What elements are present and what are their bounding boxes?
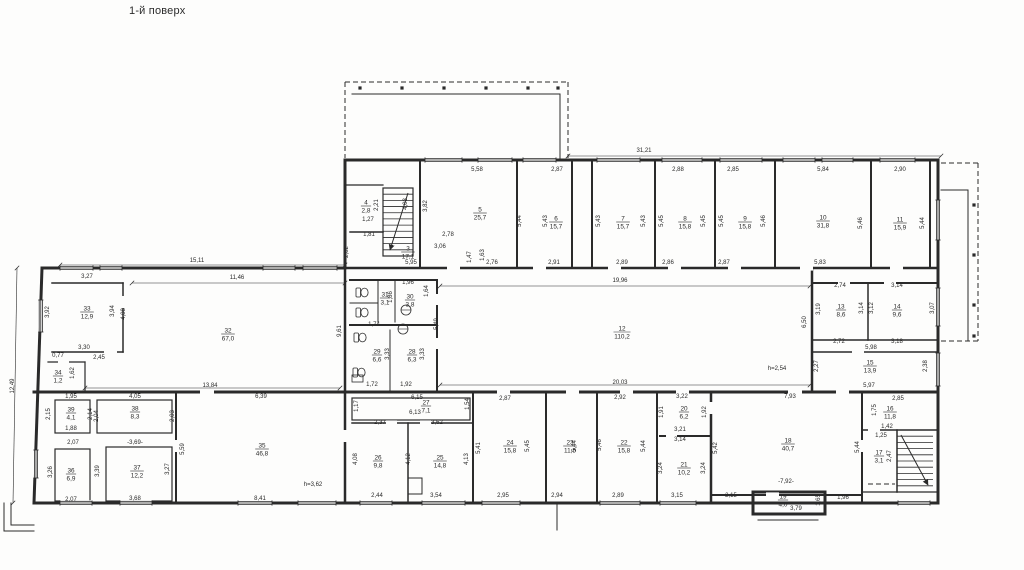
svg-text:13,9: 13,9 <box>864 367 877 374</box>
svg-text:7: 7 <box>621 216 625 223</box>
room-label-11: 1115,9 <box>893 217 907 232</box>
dimension-label: 5,44 <box>517 215 523 227</box>
dimension-label: 2,85 <box>727 167 739 173</box>
room-label-28: 286,3 <box>407 349 417 364</box>
svg-text:7,1: 7,1 <box>422 407 431 414</box>
room-label-10: 1031,8 <box>816 215 830 230</box>
room-label-30: 303,8 <box>405 294 415 309</box>
dimension-label: 5,45 <box>525 440 531 452</box>
svg-text:21: 21 <box>680 462 688 469</box>
openings-layer <box>33 157 940 505</box>
room-label-7: 715,7 <box>616 216 630 231</box>
dimension-label: 19,96 <box>612 278 628 284</box>
svg-text:28: 28 <box>408 349 416 356</box>
svg-text:15: 15 <box>866 360 874 367</box>
dimension-label: 5,43 <box>641 215 647 227</box>
svg-text:33: 33 <box>83 306 91 313</box>
dimension-label: 1,25 <box>875 433 887 439</box>
dimension-label: 1,62 <box>70 367 76 379</box>
dimension-label: h=2,54 <box>768 366 787 372</box>
svg-text:26: 26 <box>374 455 382 462</box>
room-label-24: 2415,8 <box>503 440 517 455</box>
dimension-label: 5,97 <box>863 383 875 389</box>
dimension-label: 1,42 <box>881 424 893 430</box>
svg-text:11: 11 <box>897 217 904 224</box>
dimension-label: 3,27 <box>81 274 93 280</box>
toilet-icon <box>354 333 366 342</box>
svg-text:34: 34 <box>54 370 62 377</box>
dimension-label: 3,33 <box>420 348 426 360</box>
room-label-4: 42,8 <box>361 200 371 215</box>
dimension-label: 5,83 <box>814 260 826 266</box>
dimension-label: 6,13 <box>409 410 421 416</box>
room-label-29: 296,6 <box>372 349 382 364</box>
dimension-label: 3,21 <box>674 427 686 433</box>
dimension-label: 1,91 <box>659 406 665 418</box>
dimension-label: 2,47 <box>887 450 893 462</box>
svg-text:22: 22 <box>620 440 628 447</box>
dimension-label: 3,22 <box>676 394 688 400</box>
svg-text:11,8: 11,8 <box>884 413 896 420</box>
svg-text:110,2: 110,2 <box>614 333 630 340</box>
svg-text:2,8: 2,8 <box>362 207 371 214</box>
dimension-label: 2,87 <box>499 396 511 402</box>
svg-text:15,8: 15,8 <box>739 223 752 230</box>
svg-text:17,1: 17,1 <box>402 253 415 260</box>
dimension-label: 2,74 <box>834 283 846 289</box>
svg-text:12: 12 <box>618 326 626 333</box>
dimension-label: 2,15 <box>46 408 52 420</box>
dimension-label: 2,88 <box>672 167 684 173</box>
room-label-33: 3312,9 <box>80 306 94 321</box>
dimension-label: 5,43 <box>596 215 602 227</box>
dimension-label: 2,72 <box>833 339 845 345</box>
svg-text:8,6: 8,6 <box>837 311 846 318</box>
room-label-13: 138,6 <box>836 304 846 319</box>
svg-text:16: 16 <box>886 406 894 413</box>
svg-text:6,2: 6,2 <box>680 413 689 420</box>
dimension-label: 5,44 <box>920 217 926 229</box>
dimension-label: 5,49 <box>434 318 440 330</box>
dimension-label: 3,24 <box>658 462 664 474</box>
dimension-label: 11,46 <box>230 275 245 281</box>
svg-text:8: 8 <box>683 216 687 223</box>
dimension-label: 5,44 <box>641 440 647 452</box>
svg-text:3: 3 <box>406 246 410 253</box>
room-label-18: 1840,7 <box>781 438 795 453</box>
dimension-label: 7,93 <box>784 394 796 400</box>
svg-text:3,8: 3,8 <box>406 301 415 308</box>
svg-text:27: 27 <box>422 400 430 407</box>
dimension-label: 4,05 <box>129 394 141 400</box>
dimension-label: 3,24 <box>701 462 707 474</box>
room-label-20: 206,2 <box>679 406 689 421</box>
room-label-34: 341,2 <box>53 370 63 385</box>
svg-text:38: 38 <box>131 406 139 413</box>
room-label-15: 1513,9 <box>863 360 877 375</box>
svg-text:6,6: 6,6 <box>373 356 382 363</box>
dimension-label: 2,02 <box>344 246 350 258</box>
dimension-label: 15,11 <box>190 258 205 264</box>
svg-text:9,6: 9,6 <box>893 311 902 318</box>
dimension-label: 3,62 <box>431 420 443 426</box>
room-label-38: 388,3 <box>130 406 140 421</box>
dimension-label: 1,92 <box>702 406 708 418</box>
dimension-label: 5,45 <box>701 215 707 227</box>
room-label-6: 615,7 <box>549 216 563 231</box>
dimension-label: 2,38 <box>923 360 929 372</box>
dimension-label: 3,92 <box>45 306 51 318</box>
dimension-label: 3,14 <box>859 302 865 314</box>
dimension-label: 5,45 <box>719 215 725 227</box>
dimension-label: 2,86 <box>662 260 674 266</box>
dimension-label: 3,26 <box>48 466 54 478</box>
svg-text:35: 35 <box>258 443 266 450</box>
dimension-label: 3,18 <box>891 339 903 345</box>
dimension-label: 1,72 <box>366 382 378 388</box>
dimension-label: 2,15 <box>725 493 737 499</box>
room-label-14: 149,6 <box>892 304 902 319</box>
dimension-label: 3,68 <box>129 496 141 502</box>
dimension-label: 31,21 <box>636 148 652 154</box>
svg-text:25: 25 <box>436 455 444 462</box>
svg-text:15,7: 15,7 <box>550 223 563 230</box>
dimension-label: 3,14 <box>674 437 686 443</box>
dimension-label: 20,03 <box>612 380 628 386</box>
dimension-label: 3,12 <box>869 302 875 314</box>
room-label-17: 173,1 <box>874 450 884 465</box>
room-label-36: 366,9 <box>66 468 76 483</box>
svg-text:4,0: 4,0 <box>779 501 788 508</box>
dimension-label: 6,50 <box>802 316 808 328</box>
dimension-label: h=3,62 <box>304 482 323 488</box>
dimension-label: 4,08 <box>121 308 127 320</box>
room-label-37: 3712,2 <box>130 465 144 480</box>
dimension-label: 2,87 <box>718 260 730 266</box>
svg-text:9: 9 <box>743 216 747 223</box>
svg-text:8,3: 8,3 <box>131 413 140 420</box>
room-label-21: 2110,2 <box>677 462 691 477</box>
svg-text:4,1: 4,1 <box>67 414 76 421</box>
rooms-layer: 317,142,8525,7615,7715,7815,8915,81031,8… <box>53 200 907 509</box>
dimension-label: 3,33 <box>385 348 391 360</box>
dimension-label: 3,27 <box>165 463 171 475</box>
room-label-39: 394,1 <box>66 407 76 422</box>
dimension-label: 2,89 <box>616 260 628 266</box>
dimension-label: 1,88 <box>65 426 77 432</box>
dimension-label: 5,95 <box>405 260 417 266</box>
dimension-label: 5,42 <box>713 442 719 454</box>
dimension-label: 3,06 <box>434 244 446 250</box>
dimension-label: 5,43 <box>543 215 549 227</box>
svg-text:37: 37 <box>133 465 141 472</box>
dimension-label: 3,30 <box>78 345 90 351</box>
svg-text:67,0: 67,0 <box>222 335 235 342</box>
dimension-label: 2,07 <box>65 497 77 503</box>
room-label-9: 915,8 <box>738 216 752 231</box>
svg-text:10: 10 <box>819 215 827 222</box>
svg-text:14,8: 14,8 <box>434 462 447 469</box>
dimension-label: 1,74 <box>368 322 380 328</box>
floor-plan: 1-й поверх 31,215,582,872,882,855,842,90… <box>0 0 1024 570</box>
dimension-label: 2,07 <box>67 440 79 446</box>
dimension-label: 1,96 <box>837 495 849 501</box>
svg-text:6,9: 6,9 <box>67 475 76 482</box>
dimension-label: 2,27 <box>814 360 820 372</box>
dimension-label: 5,46 <box>761 215 767 227</box>
room-label-12: 12110,2 <box>614 326 631 341</box>
svg-text:10,2: 10,2 <box>678 469 691 476</box>
svg-text:25,7: 25,7 <box>474 214 487 221</box>
dimension-label: 2,45 <box>93 355 105 361</box>
dimension-label: 2,91 <box>548 260 560 266</box>
svg-text:14: 14 <box>893 304 901 311</box>
svg-text:3,1: 3,1 <box>381 299 390 306</box>
toilet-icon <box>356 308 368 317</box>
dimension-label: 5,41 <box>476 442 482 454</box>
dimension-label: 3,39 <box>95 465 101 477</box>
svg-text:36: 36 <box>67 468 75 475</box>
svg-text:39: 39 <box>67 407 75 414</box>
dimension-label: 5,46 <box>597 439 603 451</box>
dims-layer: 31,215,582,872,882,855,842,903,824,032,2… <box>10 148 943 512</box>
dimension-label: 2,87 <box>551 167 563 173</box>
dimension-label: -3,69- <box>127 440 143 446</box>
dimension-label: 3,94 <box>110 305 116 317</box>
svg-text:15,8: 15,8 <box>504 447 517 454</box>
svg-text:9,8: 9,8 <box>374 462 383 469</box>
dimension-label: 3,82 <box>423 200 429 212</box>
dimension-label: 13,84 <box>202 383 218 389</box>
dimension-label: 1,75 <box>872 404 878 416</box>
dimension-label: 0,77 <box>52 353 64 359</box>
room-label-22: 2215,8 <box>617 440 631 455</box>
dimension-label: 1,96 <box>402 280 414 286</box>
svg-text:15,7: 15,7 <box>617 223 630 230</box>
dimension-label: 3,14 <box>891 283 903 289</box>
dimension-label: 4,08 <box>353 453 359 465</box>
svg-text:46,8: 46,8 <box>256 450 269 457</box>
dimension-label: 1,47 <box>467 251 473 263</box>
dimension-label: 2,03 <box>170 410 176 422</box>
dimension-label: 1,54 <box>465 398 471 410</box>
dimension-label: 2,89 <box>612 493 624 499</box>
svg-text:1,2: 1,2 <box>54 377 63 384</box>
room-label-25: 2514,8 <box>433 455 447 470</box>
dimension-label: 1,17 <box>354 400 360 412</box>
dimension-label: 5,46 <box>858 217 864 229</box>
dimension-label: 3,54 <box>430 493 442 499</box>
svg-text:13: 13 <box>837 304 845 311</box>
dimension-label: 3,19 <box>816 303 822 315</box>
svg-text:11,5: 11,5 <box>564 447 576 454</box>
dimension-label: 2,90 <box>894 167 906 173</box>
dimension-label: 12,49 <box>10 378 16 394</box>
svg-text:29: 29 <box>373 349 381 356</box>
room-label-16: 1611,8 <box>883 406 897 421</box>
floor-plan-svg: 31,215,582,872,882,855,842,903,824,032,2… <box>0 0 1024 570</box>
svg-text:24: 24 <box>506 440 514 447</box>
dimension-label: 1,92 <box>400 382 412 388</box>
room-label-26: 269,8 <box>373 455 383 470</box>
svg-text:15,8: 15,8 <box>618 447 631 454</box>
dimension-label: 3,15 <box>671 493 683 499</box>
dimension-label: 3,07 <box>930 302 936 314</box>
dimension-label: 2,94 <box>551 493 563 499</box>
svg-text:6,3: 6,3 <box>408 356 417 363</box>
svg-text:12,9: 12,9 <box>81 313 94 320</box>
dimension-label: 5,58 <box>471 167 483 173</box>
dimension-label: 5,45 <box>659 215 665 227</box>
dimension-label: 3,79 <box>790 506 802 512</box>
svg-text:32: 32 <box>224 328 232 335</box>
svg-text:17: 17 <box>875 450 883 457</box>
dimension-label: 5,84 <box>817 167 829 173</box>
svg-text:18: 18 <box>784 438 792 445</box>
svg-text:23: 23 <box>566 440 574 447</box>
svg-text:3,1: 3,1 <box>875 457 884 464</box>
dimension-label: 5,59 <box>180 443 186 455</box>
dimension-label: 4,03 <box>403 198 409 210</box>
dimension-label: 1,65 <box>816 494 822 506</box>
dimension-label: 2,21 <box>374 199 380 211</box>
svg-text:20: 20 <box>680 406 688 413</box>
dimension-label: 2,92 <box>614 395 626 401</box>
dimension-label: 2,37 <box>374 420 386 426</box>
dimension-label: 2,76 <box>486 260 498 266</box>
dimension-label: 2,04 <box>94 410 100 422</box>
room-label-5: 525,7 <box>473 207 487 222</box>
svg-text:15,8: 15,8 <box>679 223 692 230</box>
dimension-label: 5,98 <box>865 345 877 351</box>
dimension-label: 2,85 <box>892 396 904 402</box>
dimension-label: 2,44 <box>371 493 383 499</box>
svg-text:15,9: 15,9 <box>894 224 907 231</box>
toilet-icon <box>356 288 368 297</box>
dimension-label: 8,41 <box>254 496 266 502</box>
dimension-label: 2,78 <box>442 232 454 238</box>
svg-text:12,2: 12,2 <box>131 472 144 479</box>
room-label-8: 815,8 <box>678 216 692 231</box>
dimension-label: 1,64 <box>424 285 430 297</box>
room-label-32: 3267,0 <box>221 328 235 343</box>
room-label-35: 3546,8 <box>255 443 269 458</box>
dimension-label: 4,12 <box>406 453 412 465</box>
svg-text:31,8: 31,8 <box>817 222 830 229</box>
svg-text:4: 4 <box>364 200 368 207</box>
dimension-label: 1,81 <box>363 232 375 238</box>
dimension-label: 2,95 <box>497 493 509 499</box>
svg-text:31: 31 <box>381 292 389 299</box>
dimension-label: 1,27 <box>362 217 374 223</box>
room-label-27: 277,1 <box>421 400 431 415</box>
dimension-label: 6,39 <box>255 394 267 400</box>
svg-text:40,7: 40,7 <box>782 445 795 452</box>
dimension-label: 4,13 <box>464 453 470 465</box>
dimension-label: 5,44 <box>855 441 861 453</box>
svg-text:30: 30 <box>406 294 414 301</box>
dimension-label: 9,61 <box>337 325 343 337</box>
svg-text:5: 5 <box>478 207 482 214</box>
dimension-label: 1,63 <box>480 249 486 261</box>
svg-text:19: 19 <box>779 494 787 501</box>
svg-text:6: 6 <box>554 216 558 223</box>
dimension-label: 1,95 <box>65 394 77 400</box>
dimension-label: -7,92- <box>778 479 794 485</box>
